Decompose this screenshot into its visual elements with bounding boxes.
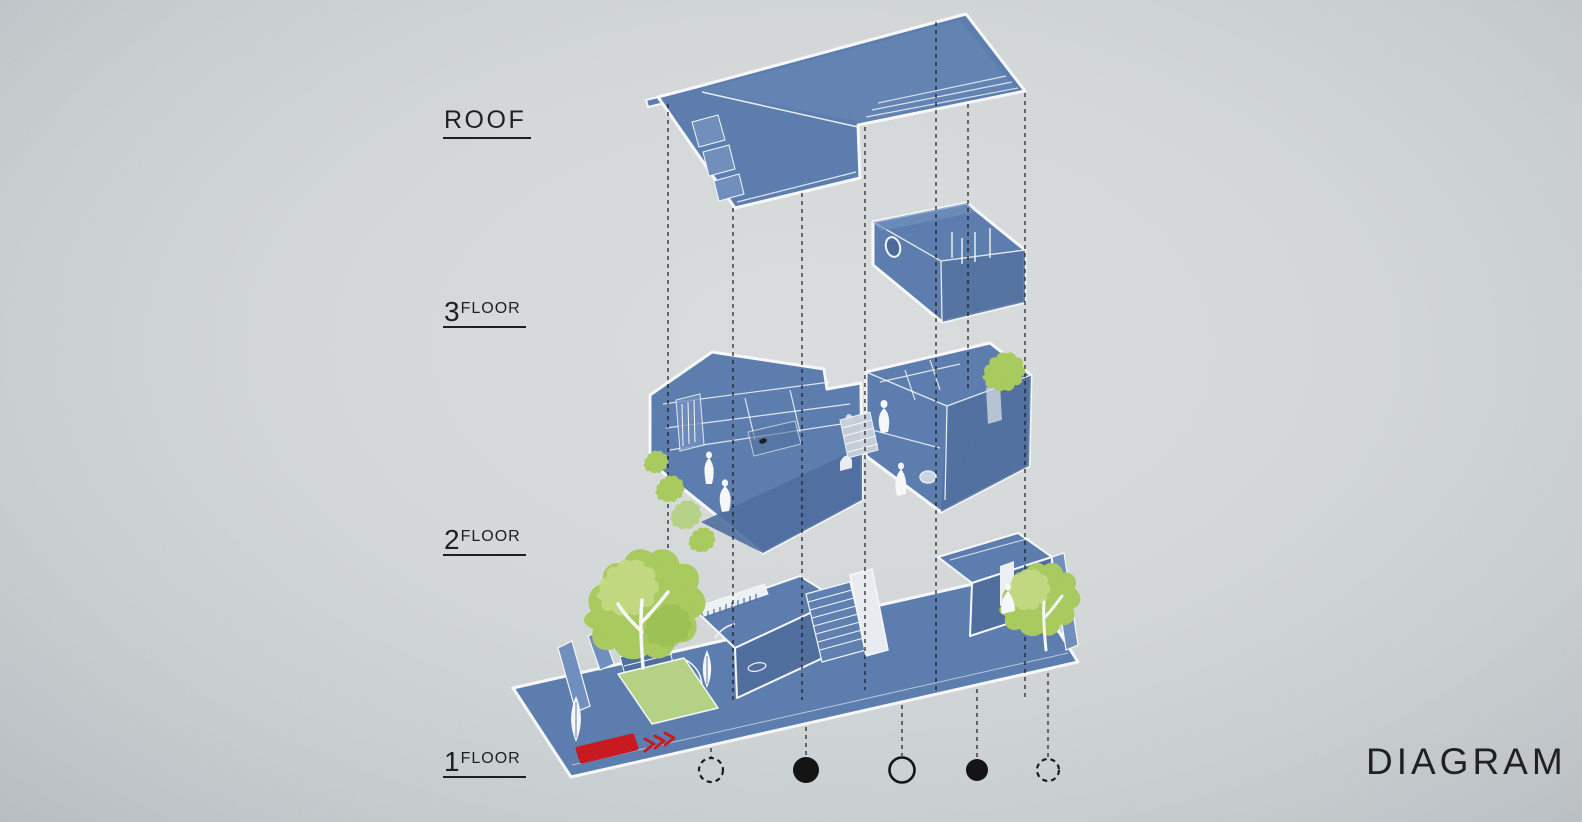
canvas: ROOF 3 FLOOR 2 FLOOR 1 FLOOR DIAGRAM	[0, 0, 1582, 822]
axonometric-diagram	[0, 0, 1582, 822]
paper-texture	[0, 0, 1582, 822]
